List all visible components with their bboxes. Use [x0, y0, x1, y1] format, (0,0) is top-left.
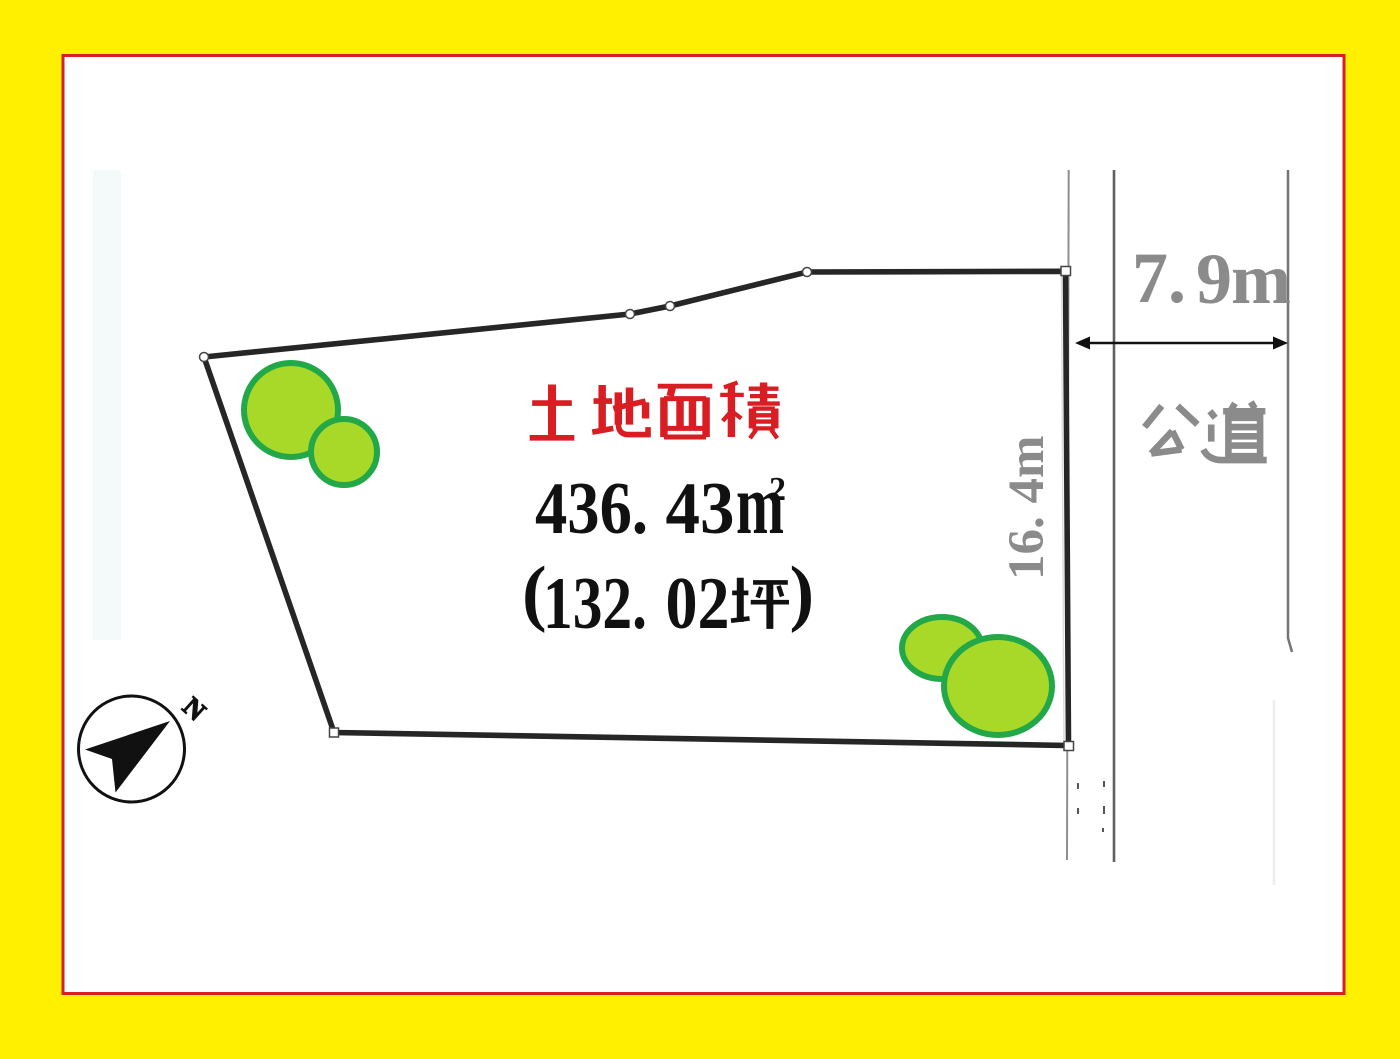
svg-text:9: 9 — [1196, 239, 1232, 319]
svg-text:7.: 7. — [1132, 238, 1186, 318]
svg-text:132.: 132. — [543, 563, 647, 645]
svg-text:43: 43 — [666, 468, 735, 550]
svg-text:436.: 436. — [535, 468, 648, 550]
svg-text:2: 2 — [769, 471, 786, 508]
svg-text:02: 02 — [666, 563, 730, 645]
svg-text:): ) — [790, 552, 815, 634]
svg-text:16. 4m: 16. 4m — [999, 436, 1055, 580]
svg-text:m: m — [1231, 239, 1291, 319]
